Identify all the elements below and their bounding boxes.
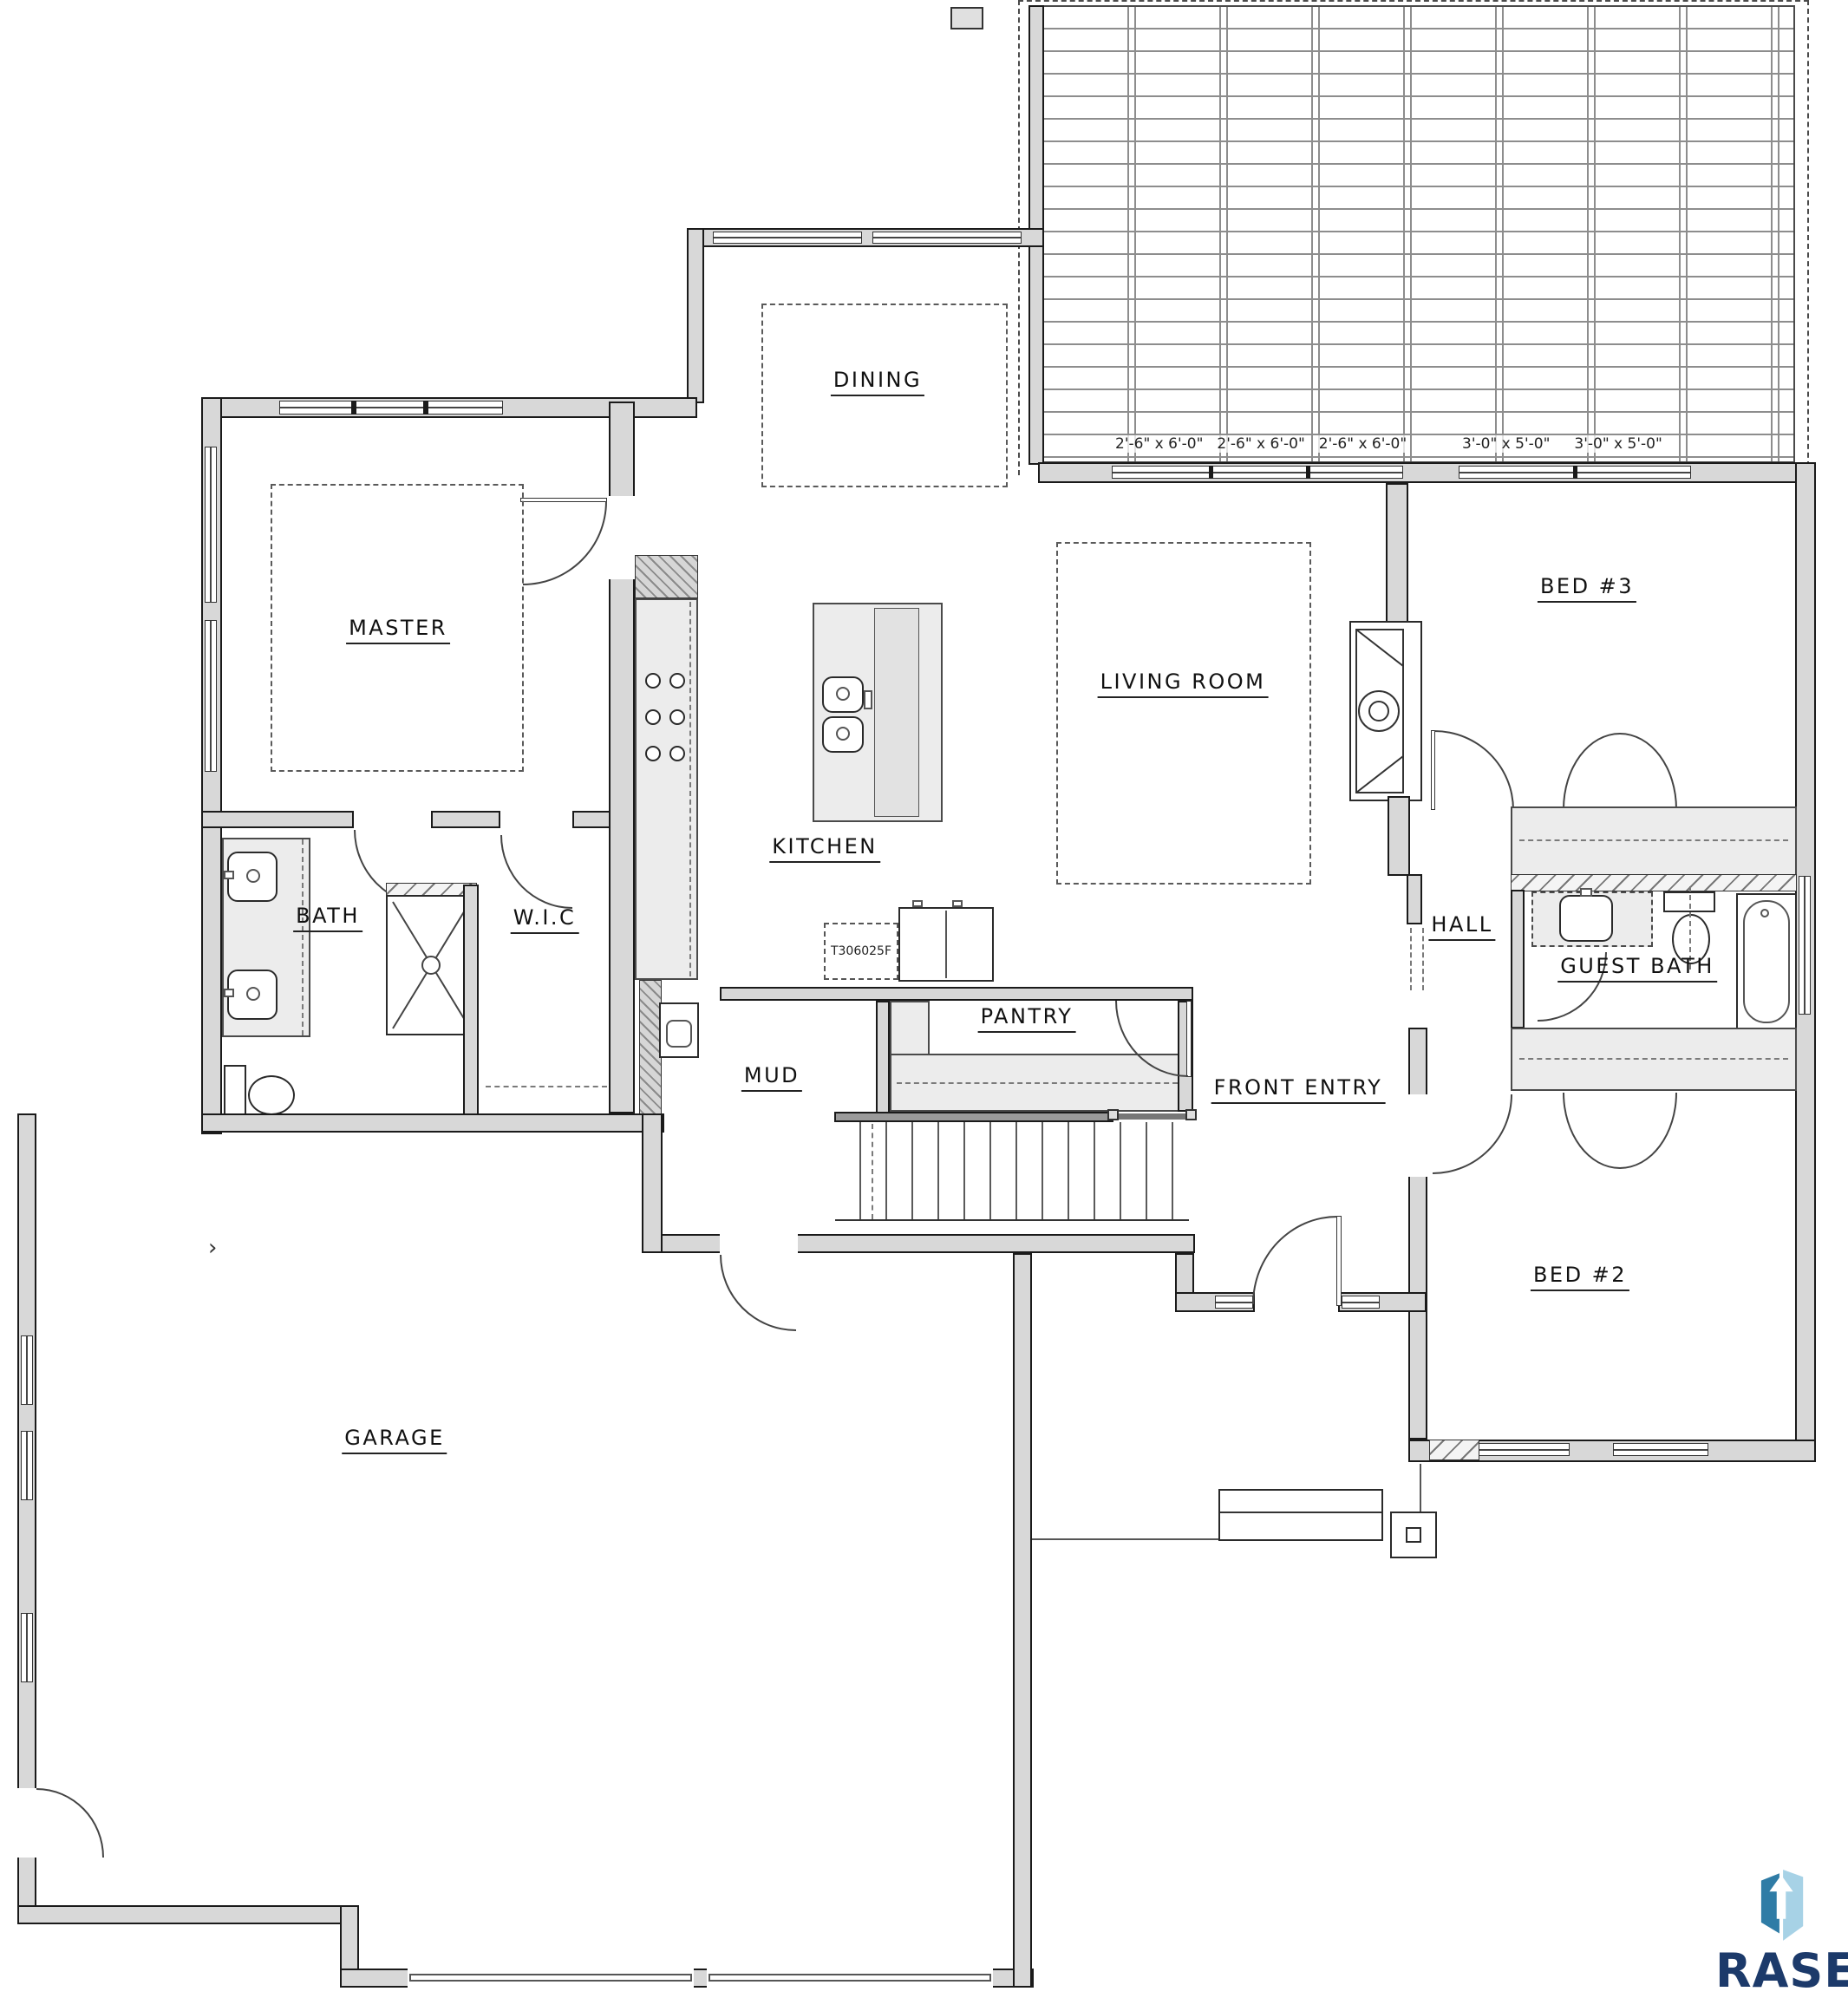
stove-burner (645, 746, 661, 761)
toilet-tank (224, 1065, 246, 1119)
room-label-text: PANTRY (981, 1004, 1074, 1028)
counter-dashed-line (897, 1082, 1186, 1084)
wall (1407, 874, 1422, 924)
sink-drain (836, 727, 850, 741)
room-label-text: KITCHEN (772, 834, 878, 859)
room-label-text: BATH (296, 904, 360, 928)
stair-handrail (1113, 1113, 1188, 1120)
window (713, 232, 862, 244)
fireplace (1349, 621, 1422, 801)
window (21, 1431, 33, 1500)
wall (572, 811, 611, 828)
faucet-icon (864, 690, 872, 709)
wall (1388, 796, 1410, 876)
window (205, 620, 217, 772)
utility-basin (666, 1020, 692, 1048)
room-label-dining: DINING (831, 368, 924, 396)
room-label-text: GUEST BATH (1560, 954, 1714, 978)
deck-post (950, 7, 983, 29)
closet-door-arc (1620, 733, 1677, 809)
closet-rod-line (1519, 1058, 1788, 1060)
window-mullion (1306, 466, 1310, 479)
stove-burner (669, 709, 685, 725)
hall-ceiling-dash (1422, 928, 1424, 990)
rase-logo: RASE (1715, 1866, 1848, 1998)
room-label-bath: BATH (293, 904, 362, 932)
wall (876, 1001, 890, 1113)
porch-line (1420, 1464, 1421, 1512)
window-dims-right: 3'-0" x 5'-0" 3'-0" x 5'-0" (1460, 435, 1664, 453)
porch-steps (1218, 1489, 1383, 1541)
room-label-text: BED #3 (1540, 574, 1634, 598)
appliance-tag-text: T306025F (831, 944, 891, 958)
staircase (835, 1122, 1189, 1221)
counter-dashed-edge (689, 602, 691, 976)
sink-drain (246, 869, 260, 883)
stove-burner (669, 673, 685, 689)
dim-label: 3'-0" x 5'-0" (1572, 435, 1663, 453)
step-line (1220, 1512, 1381, 1513)
faucet-icon (224, 989, 234, 997)
island-cabinet (874, 608, 919, 817)
wall (687, 228, 704, 403)
stove-burner (645, 673, 661, 689)
door-opening (720, 1234, 798, 1253)
fridge-handle (912, 900, 923, 907)
dim-label: 2'-6" x 6'-0" (1215, 435, 1306, 453)
closet-door-arc (1563, 1093, 1620, 1169)
room-label-text: W.I.C (513, 905, 577, 930)
window-dims-left: 2'-6" x 6'-0" 2'-6" x 6'-0" 2'-6" x 6'-0… (1113, 435, 1408, 453)
wall (431, 811, 500, 828)
window (205, 447, 217, 603)
rail-post (1185, 1109, 1197, 1120)
wall (1408, 1028, 1427, 1440)
room-label-text: BED #2 (1533, 1263, 1627, 1287)
garage-door-panel (709, 1974, 991, 1982)
room-label-mud: MUD (741, 1063, 802, 1092)
wall-hatch (1429, 1440, 1479, 1460)
stove-burner (669, 746, 685, 761)
room-label-text: GARAGE (344, 1426, 444, 1450)
sink (1559, 895, 1613, 942)
room-label-text: LIVING ROOM (1100, 669, 1266, 694)
door-opening (609, 496, 635, 579)
dim-label: 2'-6" x 6'-0" (1317, 435, 1408, 453)
room-label-pantry: PANTRY (978, 1004, 1076, 1033)
room-label-guest-bath: GUEST BATH (1557, 954, 1717, 983)
room-label-bed3: BED #3 (1538, 574, 1636, 603)
window (21, 1613, 33, 1682)
window (1112, 466, 1403, 479)
door-swing-arc (523, 501, 607, 585)
room-label-text: MASTER (349, 616, 447, 640)
window (279, 401, 503, 415)
room-label-wic: W.I.C (511, 905, 579, 934)
room-label-garage: GARAGE (342, 1426, 447, 1454)
stair-wall (834, 1112, 1113, 1122)
window (872, 232, 1022, 244)
door-swing-arc (1434, 730, 1514, 810)
wall-hatch (635, 555, 698, 598)
door-swing-arc (1433, 1094, 1512, 1174)
hall-ceiling-dash (1410, 928, 1412, 990)
window-mullion (423, 401, 428, 415)
appliance-tag: T306025F (824, 923, 898, 980)
room-label-text: DINING (833, 368, 922, 392)
wall (720, 987, 1193, 1001)
room-label-master: MASTER (346, 616, 450, 644)
arrow-mark: › (208, 1235, 217, 1261)
wall (1386, 483, 1408, 626)
room-label-text: MUD (744, 1063, 800, 1087)
sink-drain (836, 687, 850, 701)
toilet-bowl (248, 1075, 295, 1115)
deck (1042, 5, 1795, 463)
door-swing-arc (36, 1788, 104, 1858)
shelf-hatch (1511, 874, 1797, 891)
door-opening (1408, 1094, 1427, 1177)
rail-post (1107, 1109, 1119, 1120)
stair-dashed-line (872, 1124, 873, 1219)
tub-drain (1760, 909, 1769, 917)
wall (642, 1113, 663, 1253)
room-label-hall: HALL (1428, 912, 1495, 941)
living-ceiling-box (1056, 542, 1311, 885)
rase-logo-text: RASE (1715, 1943, 1848, 1998)
porch-column-core (1406, 1527, 1421, 1543)
window (1799, 876, 1811, 1015)
room-label-living-room: LIVING ROOM (1098, 669, 1269, 698)
wall (463, 885, 479, 1117)
wall (1175, 1253, 1194, 1295)
sidelite-window (1215, 1296, 1253, 1309)
window-mullion (1573, 466, 1577, 479)
sidelite-window (1342, 1296, 1380, 1309)
wall (1511, 890, 1525, 1028)
wall (201, 1113, 664, 1133)
window (1613, 1443, 1708, 1456)
window-mullion (351, 401, 356, 415)
room-label-bed2: BED #2 (1531, 1263, 1629, 1291)
room-label-text: FRONT ENTRY (1214, 1075, 1383, 1100)
closet-door-arc (1620, 1093, 1677, 1169)
sink-drain (246, 987, 260, 1001)
window (21, 1335, 33, 1405)
faucet-icon (224, 871, 234, 879)
faucet-icon (1580, 888, 1592, 897)
closet-door-arc (1563, 733, 1620, 809)
door-opening (17, 1788, 36, 1858)
room-label-front-entry: FRONT ENTRY (1211, 1075, 1386, 1104)
fridge-handle (952, 900, 963, 907)
closet-rod-line (1519, 839, 1788, 841)
door-swing-arc (500, 835, 572, 909)
door-swing-arc (720, 1255, 796, 1331)
bathtub-basin (1743, 900, 1790, 1023)
room-label-text: HALL (1431, 912, 1492, 937)
closet (1511, 806, 1797, 876)
closet-shelf-line (486, 1086, 607, 1087)
stove-burner (645, 709, 661, 725)
garage-door-panel (409, 1974, 692, 1982)
dim-label: 3'-0" x 5'-0" (1460, 435, 1551, 453)
refrigerator-door-split (945, 911, 947, 978)
window (1474, 1443, 1570, 1456)
dim-label: 2'-6" x 6'-0" (1113, 435, 1205, 453)
vanity-dashed-edge (302, 839, 304, 1035)
wall (1013, 1253, 1032, 1988)
porch-line (1032, 1538, 1220, 1540)
window-mullion (1209, 466, 1213, 479)
room-label-kitchen: KITCHEN (769, 834, 880, 863)
door-swing-arc (1252, 1216, 1337, 1304)
floor-plan: 2'-6" x 6'-0" 2'-6" x 6'-0" 2'-6" x 6'-0… (0, 0, 1848, 1998)
wall (201, 811, 354, 828)
rase-logo-icon (1755, 1870, 1807, 1942)
wall (17, 1905, 351, 1924)
